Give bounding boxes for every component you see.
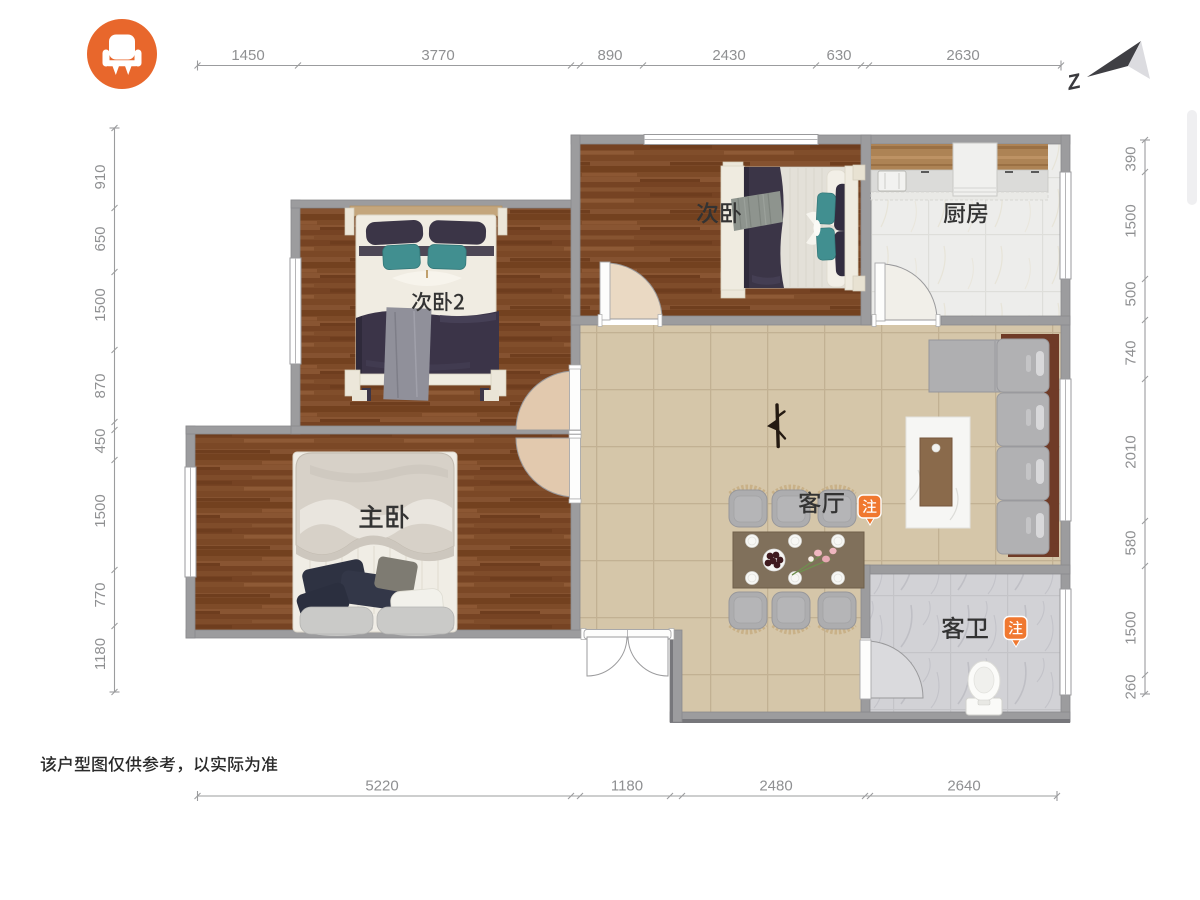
svg-text:1500: 1500 (92, 494, 109, 527)
svg-text:450: 450 (92, 428, 109, 453)
svg-text:580: 580 (1123, 530, 1140, 555)
svg-text:1180: 1180 (92, 638, 109, 670)
svg-text:1500: 1500 (1123, 204, 1140, 237)
svg-text:650: 650 (92, 226, 109, 251)
svg-text:2480: 2480 (759, 778, 792, 795)
svg-text:870: 870 (92, 373, 109, 398)
svg-text:1500: 1500 (1123, 611, 1140, 644)
svg-text:390: 390 (1123, 146, 1140, 171)
svg-text:2010: 2010 (1123, 435, 1140, 468)
svg-text:2630: 2630 (946, 47, 979, 64)
svg-text:770: 770 (92, 582, 109, 607)
svg-text:2640: 2640 (947, 778, 980, 795)
svg-text:5220: 5220 (365, 778, 398, 795)
svg-text:1180: 1180 (611, 778, 643, 795)
svg-text:3770: 3770 (421, 47, 454, 64)
svg-text:1500: 1500 (92, 288, 109, 321)
svg-text:740: 740 (1123, 340, 1140, 365)
svg-text:500: 500 (1123, 281, 1140, 306)
svg-text:890: 890 (597, 47, 622, 64)
svg-text:260: 260 (1123, 674, 1140, 699)
svg-text:1450: 1450 (231, 47, 264, 64)
svg-text:2430: 2430 (712, 47, 745, 64)
svg-text:630: 630 (826, 47, 851, 64)
svg-text:910: 910 (92, 164, 109, 189)
